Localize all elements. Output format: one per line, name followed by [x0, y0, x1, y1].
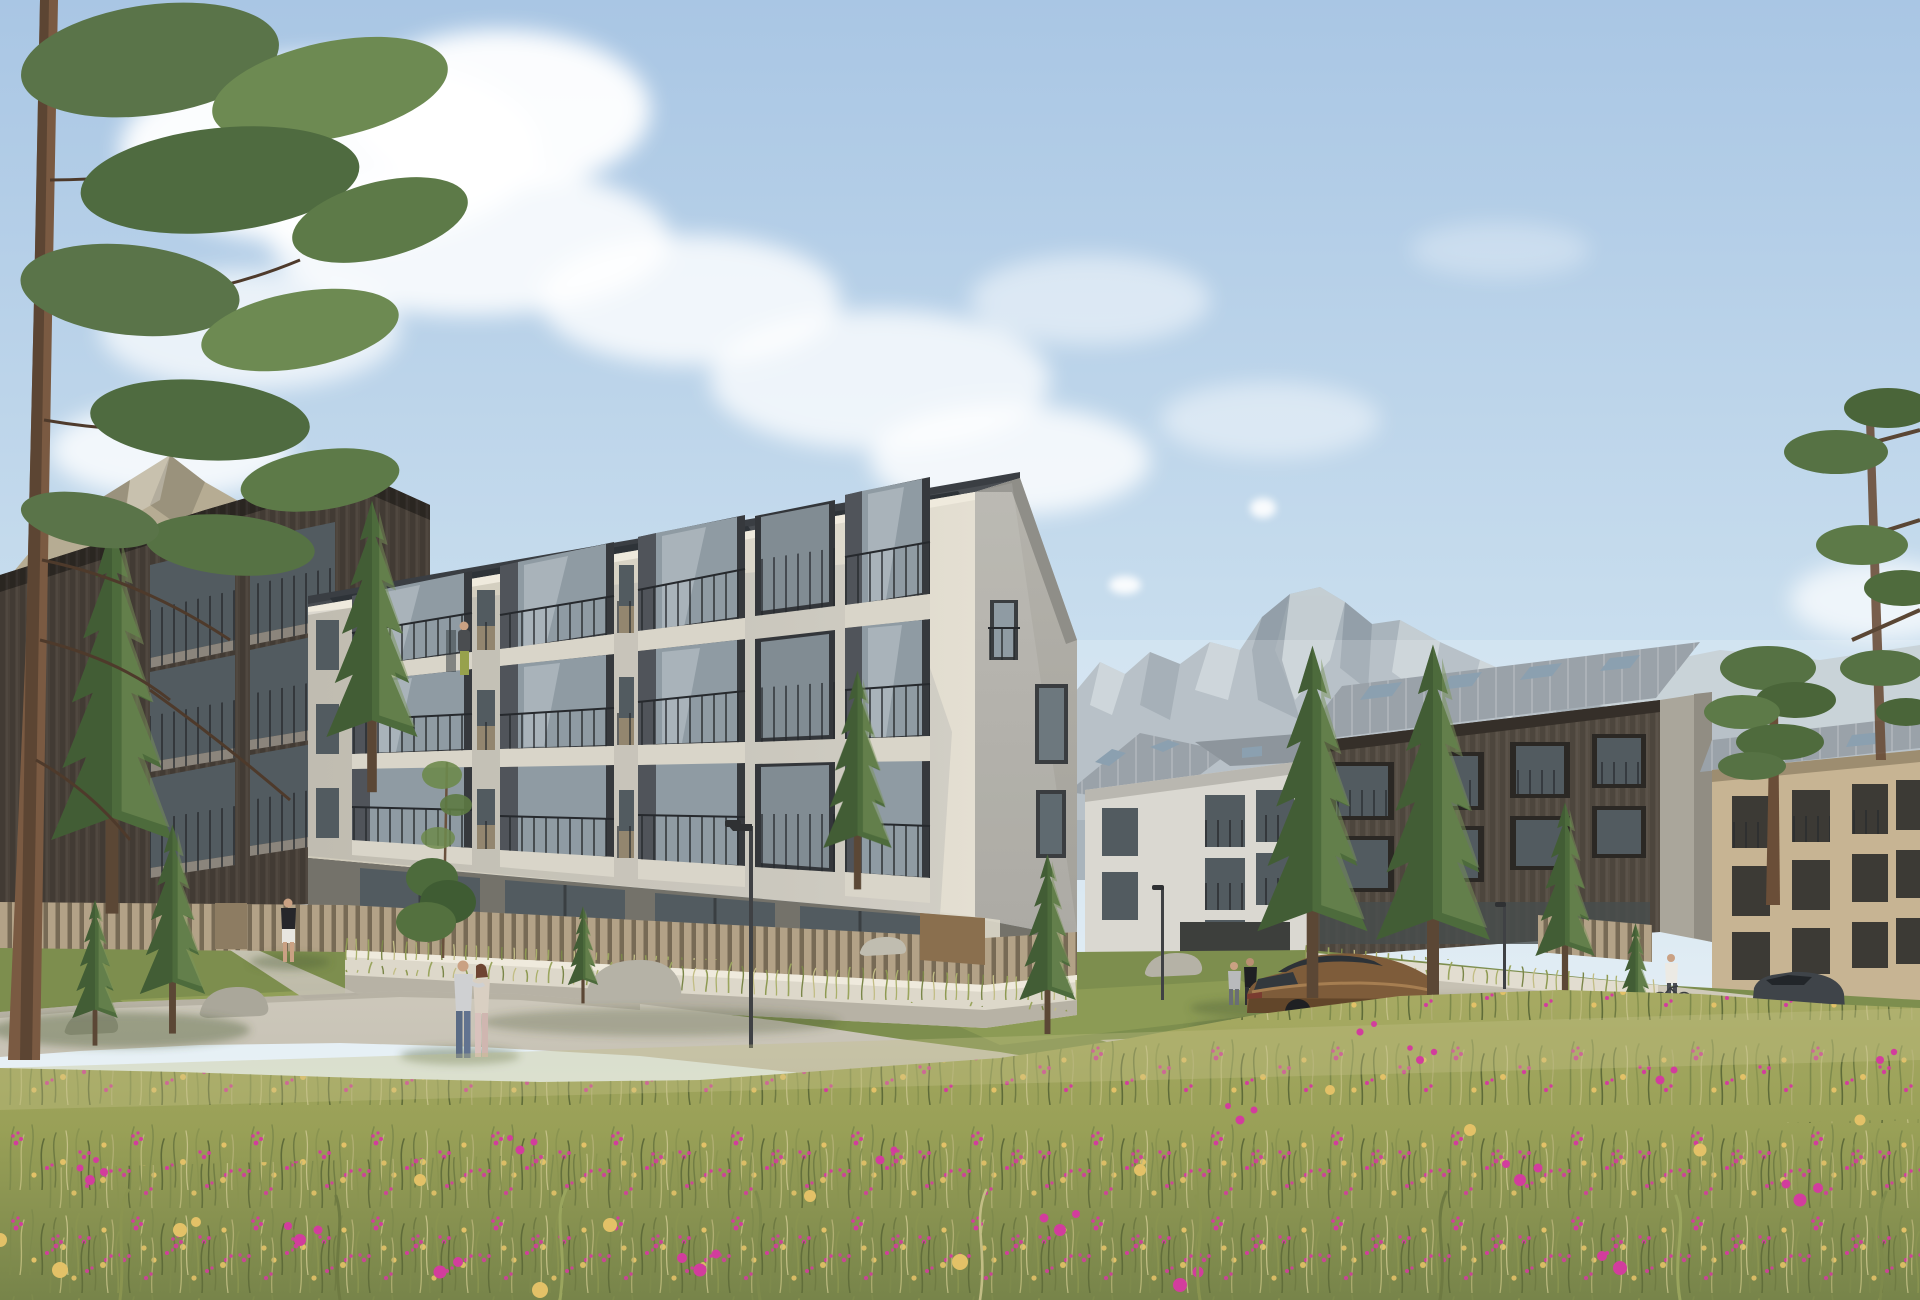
architectural-rendering: [0, 0, 1920, 1300]
facade-flat-windows: [755, 500, 835, 872]
